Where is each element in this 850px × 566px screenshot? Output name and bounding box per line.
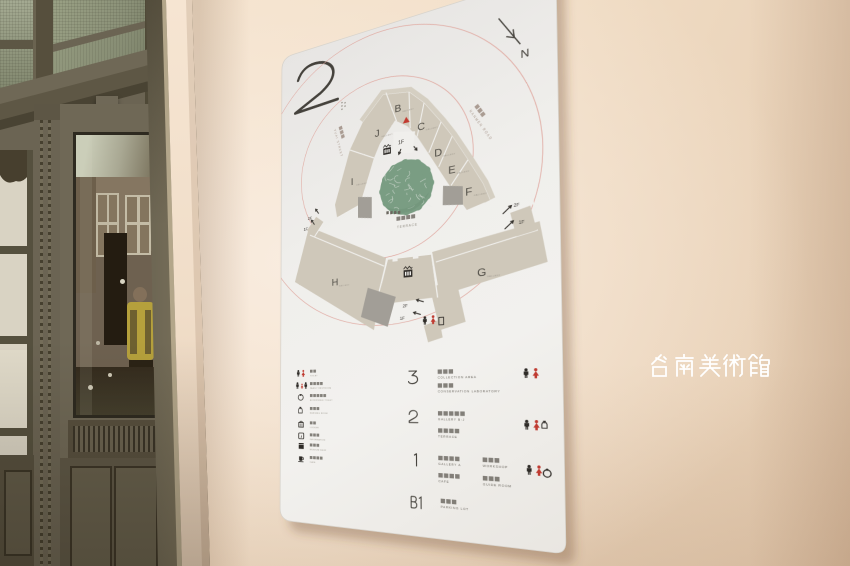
- svg-text:TERRACE: TERRACE: [397, 223, 418, 230]
- svg-text:N: N: [520, 46, 529, 61]
- svg-text:INFORMATION: INFORMATION: [310, 438, 326, 442]
- svg-text:1F: 1F: [400, 316, 405, 322]
- svg-text:C: C: [417, 120, 425, 134]
- svg-text:G: G: [477, 266, 486, 280]
- svg-text:TERRACE: TERRACE: [438, 435, 457, 440]
- svg-text:1F: 1F: [398, 138, 405, 146]
- svg-text:1F: 1F: [519, 219, 525, 226]
- svg-text:WORKSHOP: WORKSHOP: [483, 465, 509, 469]
- svg-text:1F: 1F: [304, 227, 308, 232]
- svg-text:F: F: [465, 185, 472, 199]
- svg-text:H: H: [332, 276, 339, 288]
- svg-text:E: E: [448, 163, 456, 177]
- svg-text:FAMILY RESTROOM: FAMILY RESTROOM: [310, 386, 332, 390]
- svg-text:i: i: [301, 434, 302, 439]
- svg-text:COLLECTION AREA: COLLECTION AREA: [438, 375, 477, 380]
- svg-text:J: J: [375, 127, 380, 140]
- svg-text:MUSEUM SHOP: MUSEUM SHOP: [310, 449, 327, 452]
- svg-text:2F: 2F: [514, 202, 520, 209]
- svg-text:D: D: [434, 146, 442, 160]
- svg-text:GALLERY B-J: GALLERY B-J: [438, 417, 465, 422]
- svg-text:CAFE: CAFE: [310, 460, 317, 464]
- svg-text:ACCESSIBLE TOILET: ACCESSIBLE TOILET: [310, 399, 333, 403]
- svg-text:TOILET: TOILET: [310, 375, 318, 378]
- svg-text:B: B: [395, 102, 402, 115]
- svg-text:I: I: [351, 176, 354, 188]
- svg-text:CAFE: CAFE: [438, 479, 449, 484]
- svg-text:GUIDE ROOM: GUIDE ROOM: [483, 484, 512, 489]
- svg-text:LOCKER: LOCKER: [310, 427, 320, 430]
- svg-text:CONSERVATION LABORATORY: CONSERVATION LABORATORY: [438, 389, 501, 393]
- svg-text:NURSING ROOM: NURSING ROOM: [310, 413, 328, 416]
- svg-text:2F: 2F: [403, 303, 408, 309]
- svg-text:GALLERY A: GALLERY A: [438, 462, 461, 468]
- svg-text:PARKING LOT: PARKING LOT: [441, 505, 469, 512]
